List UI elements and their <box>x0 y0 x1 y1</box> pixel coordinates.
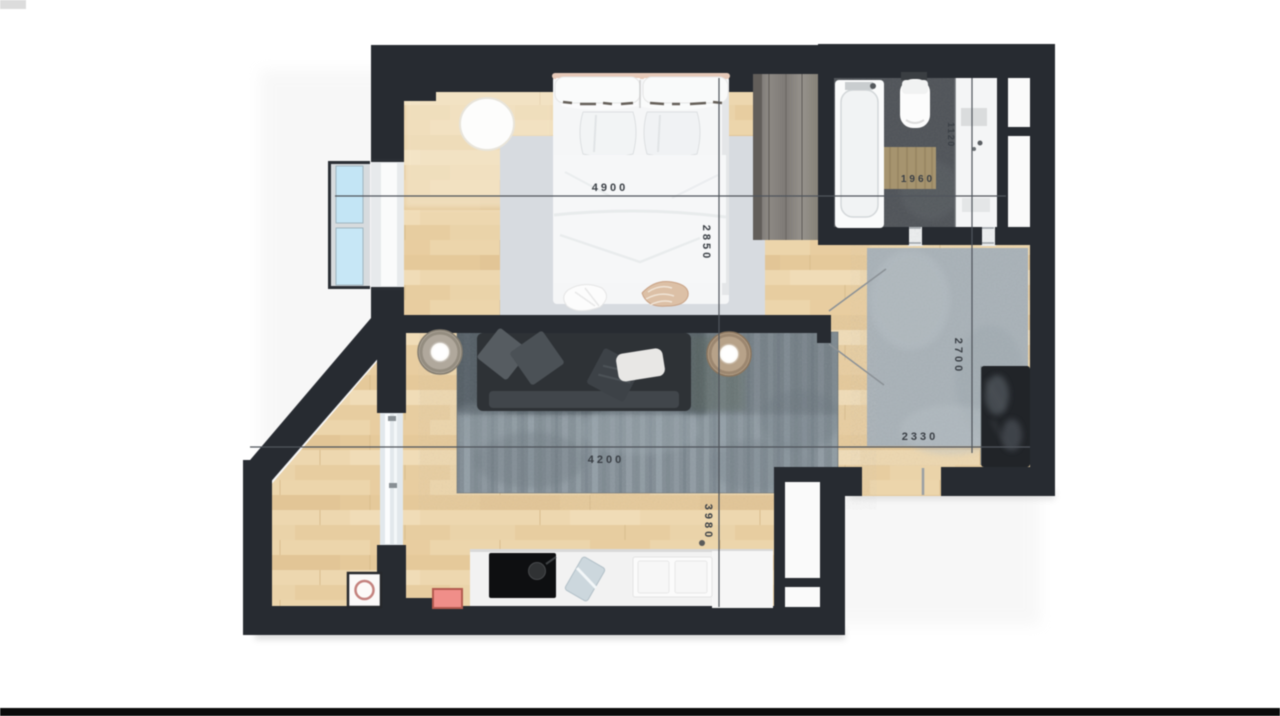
svg-text:2330: 2330 <box>902 431 938 443</box>
svg-text:2700: 2700 <box>952 338 964 374</box>
svg-text:1120: 1120 <box>946 122 956 148</box>
svg-text:4900: 4900 <box>592 182 628 194</box>
svg-text:2850: 2850 <box>700 225 712 261</box>
svg-text:4200: 4200 <box>588 454 624 466</box>
svg-text:3980: 3980 <box>702 504 714 540</box>
svg-text:1960: 1960 <box>901 174 935 185</box>
